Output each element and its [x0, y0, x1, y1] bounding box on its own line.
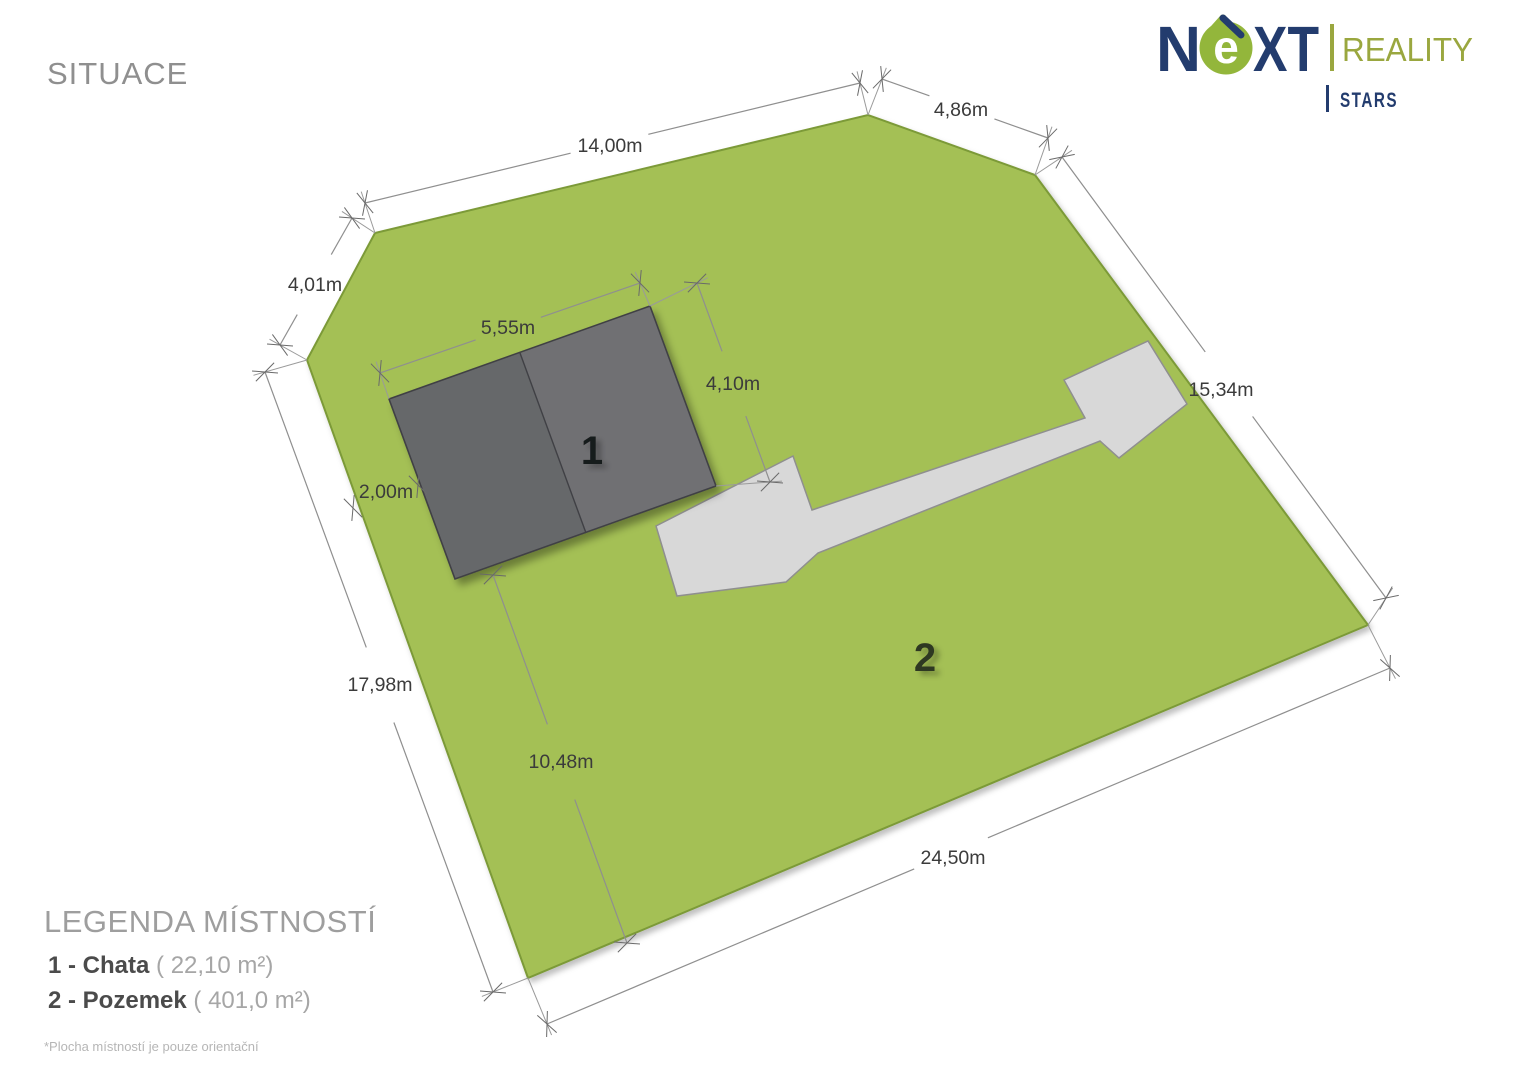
- extension-line: [1368, 625, 1395, 679]
- extension-line: [270, 339, 307, 360]
- legend-item-chata-area: ( 22,10 m²): [149, 952, 273, 979]
- dimension-label: 4,86m: [934, 99, 988, 121]
- logo-text-e: e: [1213, 21, 1239, 73]
- extension-line: [528, 978, 552, 1035]
- dimension-label: 4,01m: [288, 274, 342, 296]
- dimension-tick: [1039, 129, 1057, 148]
- legend-footnote: *Plocha místností je pouze orientační: [44, 1039, 376, 1054]
- dimension-label: 24,50m: [920, 847, 985, 869]
- dimension-tick: [873, 70, 891, 89]
- dimension-line: [280, 315, 297, 345]
- logo-divider-reality: [1330, 24, 1334, 71]
- dimension-line: [994, 119, 1048, 138]
- situace-page: SITUACE 14,00m4,86m15,34m24,50m17,98m4,0…: [0, 0, 1527, 1080]
- legend-item-chata-label: 1 - Chata: [48, 952, 149, 979]
- extension-line: [857, 71, 868, 115]
- logo-text-xt: XT: [1253, 13, 1319, 85]
- logo-text-reality: REALITY: [1342, 31, 1473, 68]
- dimension-label: 4,10m: [706, 373, 760, 395]
- dimension-label: 10,48m: [528, 751, 593, 773]
- extension-line: [342, 211, 375, 233]
- dimension-label: 5,55m: [481, 317, 535, 339]
- legend: LEGENDA MÍSTNOSTÍ 1 - Chata ( 22,10 m²) …: [44, 904, 376, 1054]
- legend-item-chata: 1 - Chata ( 22,10 m²): [48, 952, 376, 980]
- dimension-line: [882, 79, 929, 96]
- dimension-tick: [1373, 595, 1398, 600]
- dimension-tick: [352, 495, 354, 521]
- logo-text-stars: STARS: [1340, 89, 1398, 112]
- dimension-tick: [547, 1011, 548, 1037]
- logo-text-n: N: [1156, 13, 1201, 85]
- logo-divider-stars: [1326, 85, 1329, 112]
- dimension-tick: [1049, 154, 1074, 159]
- dimension-label: 15,34m: [1188, 379, 1253, 401]
- dimension-line: [331, 218, 352, 255]
- area-label-1: 1: [581, 429, 603, 473]
- area-label-2: 2: [914, 636, 936, 680]
- legend-item-pozemek-area: ( 401,0 m²): [187, 987, 311, 1014]
- legend-item-pozemek-label: 2 - Pozemek: [48, 987, 187, 1014]
- dimension-label: 17,98m: [347, 674, 412, 696]
- legend-item-pozemek: 2 - Pozemek ( 401,0 m²): [48, 987, 376, 1015]
- next-reality-logo: N e XT REALITY STARS: [1143, 4, 1503, 124]
- legend-title: LEGENDA MÍSTNOSTÍ: [44, 904, 376, 940]
- dimension-label: 14,00m: [577, 135, 642, 157]
- dimension-label: 2,00m: [359, 481, 413, 503]
- extension-line: [253, 360, 307, 375]
- dimension-tick: [1390, 655, 1391, 681]
